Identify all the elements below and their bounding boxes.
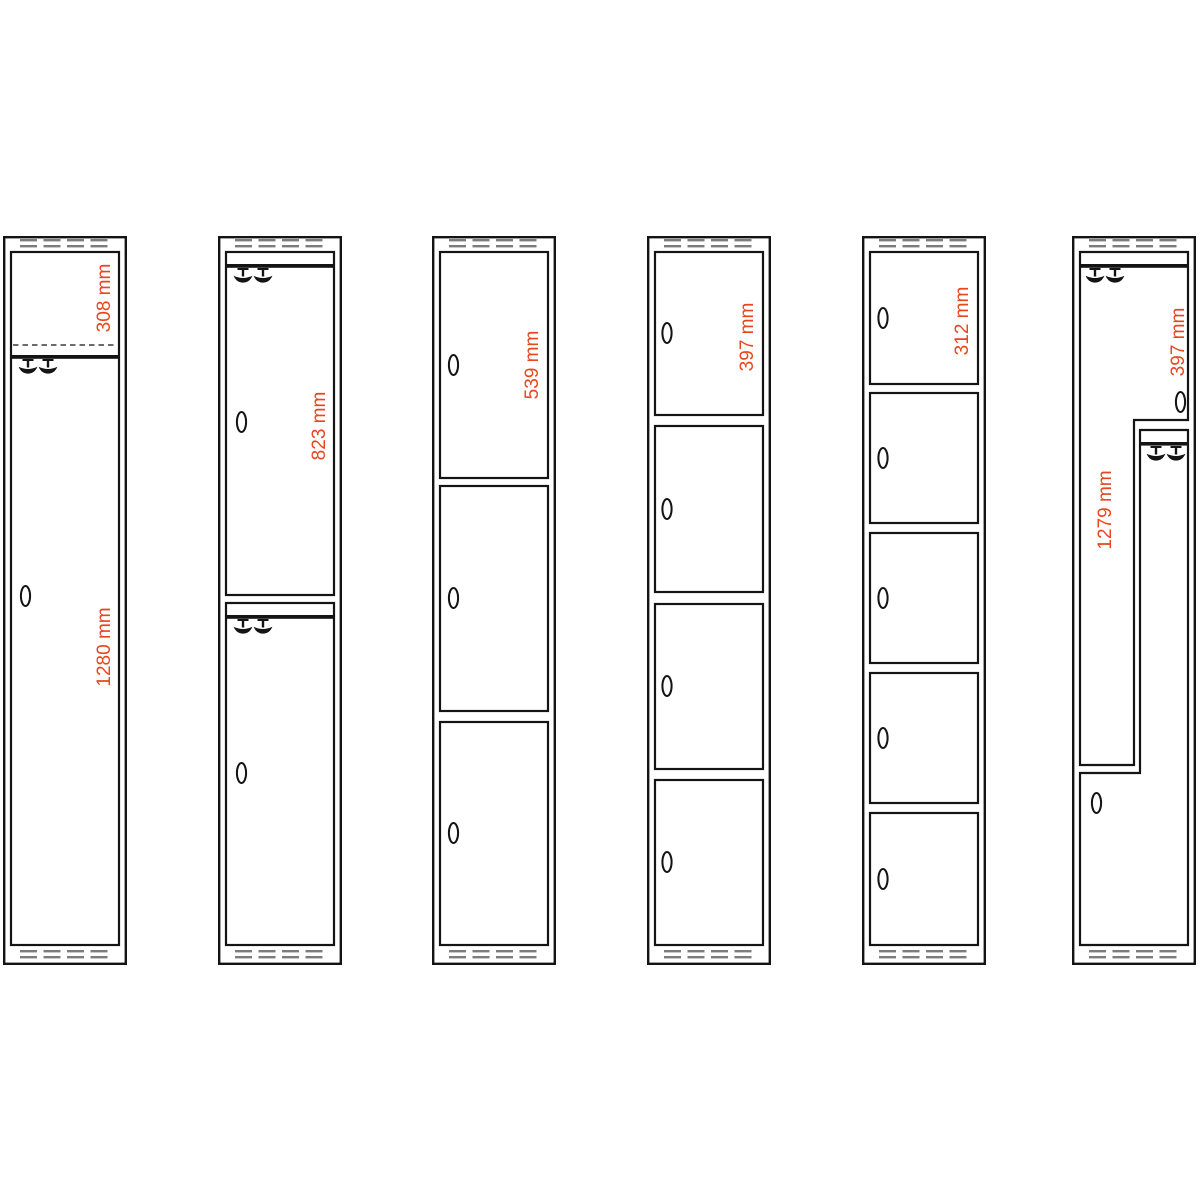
locker-diagram-6: 397 mm 1279 mm bbox=[1072, 236, 1196, 965]
door-handle bbox=[662, 499, 671, 519]
locker-diagram-4: 397 mm bbox=[647, 236, 771, 965]
dimension-label: 397 mm bbox=[1168, 308, 1189, 377]
shelf-line bbox=[11, 355, 119, 359]
door-handle bbox=[878, 869, 887, 889]
dimension-label: 1279 mm bbox=[1095, 470, 1116, 549]
door-handle bbox=[662, 323, 671, 343]
dimension-label: 823 mm bbox=[309, 392, 330, 461]
door-handle bbox=[1092, 793, 1101, 813]
door-handle bbox=[21, 586, 30, 606]
door-handle bbox=[449, 355, 458, 375]
shelf-line bbox=[226, 264, 334, 268]
door-handle bbox=[449, 588, 458, 608]
door-handle bbox=[878, 308, 887, 328]
locker-diagram-2: 823 mm bbox=[218, 236, 342, 965]
door-handle bbox=[237, 763, 246, 783]
door-handle bbox=[878, 448, 887, 468]
locker-diagram-3: 539 mm bbox=[432, 236, 556, 965]
door-handle bbox=[878, 588, 887, 608]
dimension-label: 1280 mm bbox=[94, 607, 115, 686]
door-handle bbox=[1176, 392, 1185, 412]
door-handle bbox=[662, 676, 671, 696]
shelf-line bbox=[226, 615, 334, 619]
door-handle bbox=[449, 823, 458, 843]
shelf-line bbox=[1140, 442, 1188, 446]
door-handle bbox=[237, 412, 246, 432]
dimension-label: 312 mm bbox=[952, 287, 973, 356]
locker-size-diagrams: 308 mm 1280 mm 823 mm bbox=[0, 0, 1200, 1200]
dimension-label: 539 mm bbox=[522, 331, 543, 400]
locker-diagram-1: 308 mm 1280 mm bbox=[3, 236, 127, 965]
shelf-line bbox=[1080, 264, 1188, 268]
locker-diagram-5: 312 mm bbox=[862, 236, 986, 965]
dimension-label: 308 mm bbox=[94, 264, 115, 333]
door-handle bbox=[662, 852, 671, 872]
door-handle bbox=[878, 728, 887, 748]
dimension-label: 397 mm bbox=[737, 303, 758, 372]
